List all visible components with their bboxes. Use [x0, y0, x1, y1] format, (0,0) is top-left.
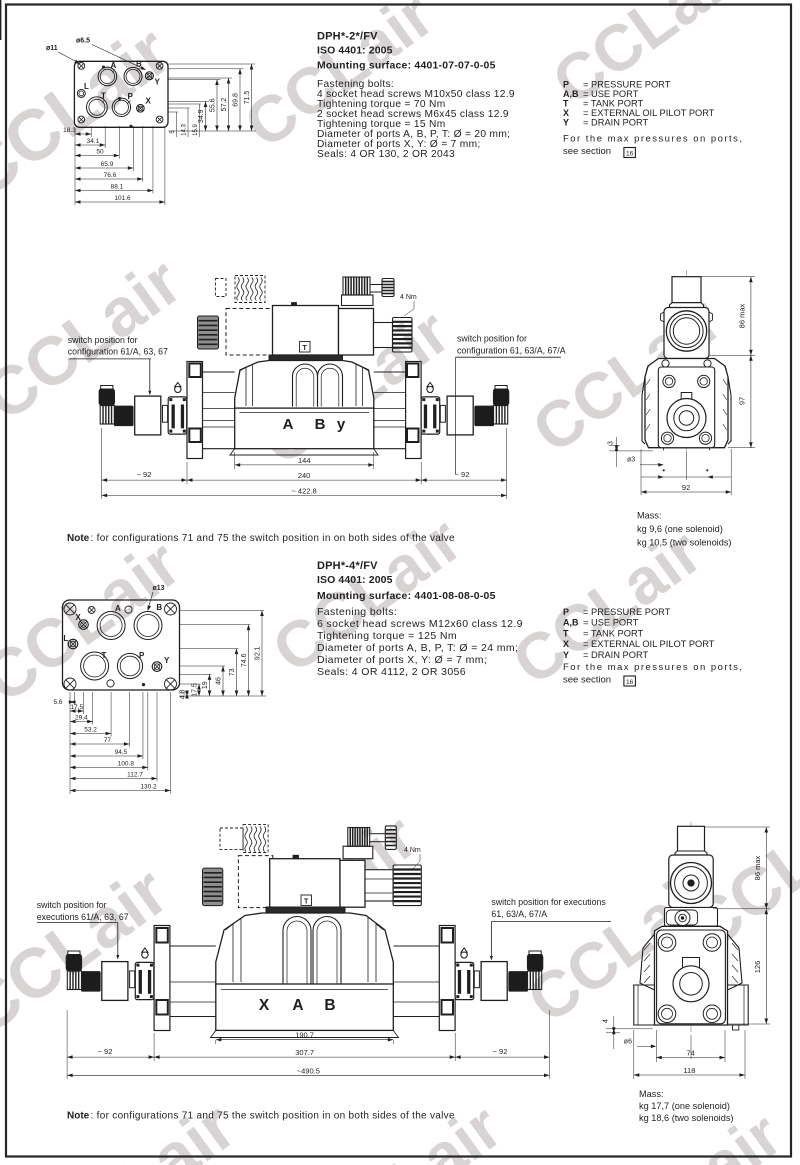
svg-text:57.2: 57.2 [221, 98, 228, 112]
svg-text:5.6: 5.6 [53, 699, 62, 706]
svg-text:88.1: 88.1 [111, 184, 124, 191]
svg-text:T: T [303, 345, 308, 352]
svg-text:16: 16 [626, 679, 634, 686]
svg-text:= PRESSURE PORT: = PRESSURE PORT [583, 80, 671, 90]
svg-text:ø3: ø3 [627, 457, 635, 464]
svg-text:Seals: 4 OR 4112, 2 OR 3056: Seals: 4 OR 4112, 2 OR 3056 [317, 666, 466, 678]
svg-text:For the max pressures on ports: For the max pressures on ports, [563, 662, 742, 673]
svg-text:65.9: 65.9 [101, 161, 114, 168]
svg-text:X: X [563, 108, 569, 118]
svg-text:A: A [111, 61, 117, 70]
svg-text:92: 92 [682, 483, 690, 492]
svg-text:Note: Note [67, 533, 90, 544]
svg-text:switch position for: switch position for [37, 900, 107, 910]
svg-text:Mounting surface: 4401-08-08-0: Mounting surface: 4401-08-08-0-05 [317, 591, 496, 602]
svg-text:: for configurations 71 and 75: : for configurations 71 and 75 the switc… [91, 533, 455, 544]
svg-text:P: P [563, 607, 569, 617]
svg-text:= USE PORT: = USE PORT [583, 89, 639, 99]
svg-text:B: B [315, 416, 326, 433]
svg-text:configuration 61/A, 63, 67: configuration 61/A, 63, 67 [68, 347, 168, 357]
svg-text:= USE PORT: = USE PORT [583, 618, 639, 628]
svg-text:ø13: ø13 [153, 585, 165, 592]
svg-text:= DRAIN PORT: = DRAIN PORT [583, 650, 648, 660]
svg-text:4.8: 4.8 [180, 690, 187, 700]
svg-text:112.7: 112.7 [127, 772, 143, 779]
svg-text:73: 73 [229, 668, 236, 676]
svg-text:kg 18,6 (two solenoids): kg 18,6 (two solenoids) [639, 1113, 733, 1123]
svg-text:ISO 4401: 2005: ISO 4401: 2005 [317, 45, 393, 57]
svg-text:Y: Y [563, 118, 569, 128]
svg-text:X: X [75, 613, 81, 622]
svg-text:4: 4 [603, 1019, 610, 1023]
svg-text:L: L [63, 634, 68, 643]
svg-text:4 Nm: 4 Nm [400, 294, 417, 301]
svg-text:19: 19 [202, 681, 209, 689]
svg-text:71.5: 71.5 [244, 91, 251, 105]
svg-text:= DRAIN PORT: = DRAIN PORT [583, 118, 648, 128]
svg-text:4 Nm: 4 Nm [404, 847, 421, 854]
svg-text:6 socket head screws M12x60 cl: 6 socket head screws M12x60 class 12.9 [317, 618, 523, 630]
svg-text:Tightening torque = 125 Nm: Tightening torque = 125 Nm [317, 630, 457, 642]
svg-text:16: 16 [626, 150, 634, 157]
svg-text:ISO 4401: 2005: ISO 4401: 2005 [317, 574, 393, 586]
svg-text:18.3: 18.3 [63, 127, 76, 134]
svg-text:Fastening bolts:: Fastening bolts: [317, 606, 397, 618]
svg-text:97: 97 [738, 397, 747, 405]
svg-text:17.5: 17.5 [192, 683, 199, 697]
svg-text:144: 144 [298, 456, 311, 465]
svg-text:T: T [101, 92, 106, 101]
svg-text:L: L [84, 82, 89, 91]
svg-text:Y: Y [164, 656, 170, 665]
svg-text:B: B [324, 997, 335, 1014]
svg-text:~ 92: ~ 92 [455, 470, 470, 479]
svg-text:see section: see section [563, 675, 611, 686]
svg-text:configuration 61, 63/A, 67/A: configuration 61, 63/A, 67/A [457, 346, 566, 356]
svg-text:34.9: 34.9 [198, 109, 205, 123]
svg-text:kg 17,7 (one solenoid): kg 17,7 (one solenoid) [639, 1101, 730, 1111]
svg-text:B: B [136, 60, 142, 69]
svg-text:= EXTERNAL OIL PILOT PORT: = EXTERNAL OIL PILOT PORT [583, 108, 715, 118]
svg-text:ø6: ø6 [624, 1039, 632, 1046]
svg-text:T: T [563, 628, 569, 638]
svg-text:74: 74 [686, 1049, 694, 1058]
svg-text:A: A [292, 997, 303, 1014]
svg-text:~ 92: ~ 92 [493, 1047, 508, 1056]
svg-text:X: X [259, 997, 270, 1014]
svg-text:50: 50 [96, 149, 104, 156]
svg-text:77: 77 [104, 737, 112, 744]
svg-text:Mass:: Mass: [639, 1089, 664, 1099]
svg-text:= TANK PORT: = TANK PORT [583, 99, 644, 109]
svg-text:executions 61/A, 63, 67: executions 61/A, 63, 67 [37, 912, 129, 922]
svg-text:kg 9,6 (one solenoid): kg 9,6 (one solenoid) [637, 524, 723, 534]
svg-text:T: T [102, 651, 107, 660]
svg-text:46: 46 [216, 677, 223, 685]
svg-text:15.9: 15.9 [193, 124, 199, 136]
svg-text:126: 126 [753, 961, 762, 974]
svg-text:A: A [115, 604, 121, 613]
svg-text:X: X [146, 97, 152, 106]
svg-text:switch position for: switch position for [457, 334, 527, 344]
svg-text:kg 10,5 (two solenoids): kg 10,5 (two solenoids) [637, 538, 731, 548]
svg-text:14.3: 14.3 [182, 124, 188, 136]
svg-text:Mass:: Mass: [637, 511, 662, 521]
svg-text:3: 3 [608, 441, 615, 445]
svg-text:= EXTERNAL OIL PILOT PORT: = EXTERNAL OIL PILOT PORT [583, 639, 715, 649]
svg-text:X: X [563, 639, 569, 649]
svg-text:190.7: 190.7 [295, 1031, 314, 1040]
svg-text:~ 92: ~ 92 [98, 1047, 113, 1056]
svg-text:switch position for executions: switch position for executions [491, 897, 606, 907]
svg-text:B: B [156, 603, 162, 612]
svg-text:For the max pressures on ports: For the max pressures on ports, [563, 133, 742, 144]
svg-text:53.2: 53.2 [84, 727, 97, 734]
svg-text:17.5: 17.5 [70, 704, 83, 711]
svg-text:Diameter of ports X, Y: Ø = 7: Diameter of ports X, Y: Ø = 7 mm; [317, 654, 487, 666]
svg-text:= TANK PORT: = TANK PORT [583, 628, 644, 638]
svg-text:Mounting surface: 4401-07-07-0: Mounting surface: 4401-07-07-0-05 [317, 61, 496, 72]
svg-text:~ 92: ~ 92 [137, 470, 152, 479]
svg-text:P: P [563, 80, 569, 90]
svg-text:29.4: 29.4 [75, 715, 88, 722]
svg-text:Y: Y [155, 78, 161, 87]
svg-text:76.6: 76.6 [104, 172, 117, 179]
svg-text:DPH*-4*/FV: DPH*-4*/FV [317, 560, 378, 572]
svg-text:DPH*-2*/FV: DPH*-2*/FV [317, 31, 378, 43]
svg-text:69.8: 69.8 [233, 93, 240, 107]
svg-text:86 max: 86 max [753, 855, 762, 880]
svg-text:: for configurations 71 and 75: : for configurations 71 and 75 the switc… [91, 1111, 455, 1122]
svg-text:~490.5: ~490.5 [297, 1066, 320, 1075]
svg-text:Note: Note [67, 1111, 90, 1122]
svg-text:61, 63/A, 67/A: 61, 63/A, 67/A [491, 909, 547, 919]
svg-text:ø11: ø11 [46, 45, 58, 52]
svg-text:130.2: 130.2 [140, 784, 157, 791]
svg-text:101.6: 101.6 [114, 195, 131, 202]
svg-text:Seals: 4 OR 130, 2 OR 2043: Seals: 4 OR 130, 2 OR 2043 [317, 149, 455, 160]
svg-text:A,B: A,B [563, 618, 579, 628]
svg-text:y: y [337, 416, 346, 433]
svg-text:118: 118 [683, 1066, 695, 1075]
svg-text:A: A [283, 416, 294, 433]
svg-text:240: 240 [298, 471, 311, 480]
svg-text:ø6.5: ø6.5 [76, 38, 90, 45]
svg-text:P: P [128, 92, 134, 101]
svg-text:34.1: 34.1 [87, 138, 100, 145]
svg-text:307.7: 307.7 [295, 1048, 314, 1057]
svg-text:~ 422.8: ~ 422.8 [291, 486, 316, 495]
svg-text:A,B: A,B [563, 89, 579, 99]
svg-text:Y: Y [563, 650, 569, 660]
svg-text:Diameter of ports A, B, P, T:: Diameter of ports A, B, P, T: Ø = 24 mm; [317, 642, 518, 654]
svg-text:switch position for: switch position for [68, 335, 138, 345]
svg-text:= PRESSURE PORT: = PRESSURE PORT [583, 607, 671, 617]
svg-text:74.6: 74.6 [241, 653, 248, 667]
svg-text:100.8: 100.8 [118, 760, 135, 767]
svg-text:86 max: 86 max [738, 303, 747, 328]
svg-text:P: P [139, 651, 145, 660]
svg-text:see section: see section [563, 146, 611, 157]
svg-text:94.5: 94.5 [115, 749, 128, 756]
svg-text:T: T [304, 899, 309, 906]
svg-text:92.1: 92.1 [255, 646, 262, 660]
svg-text:55.6: 55.6 [210, 98, 217, 112]
svg-text:T: T [563, 99, 569, 109]
